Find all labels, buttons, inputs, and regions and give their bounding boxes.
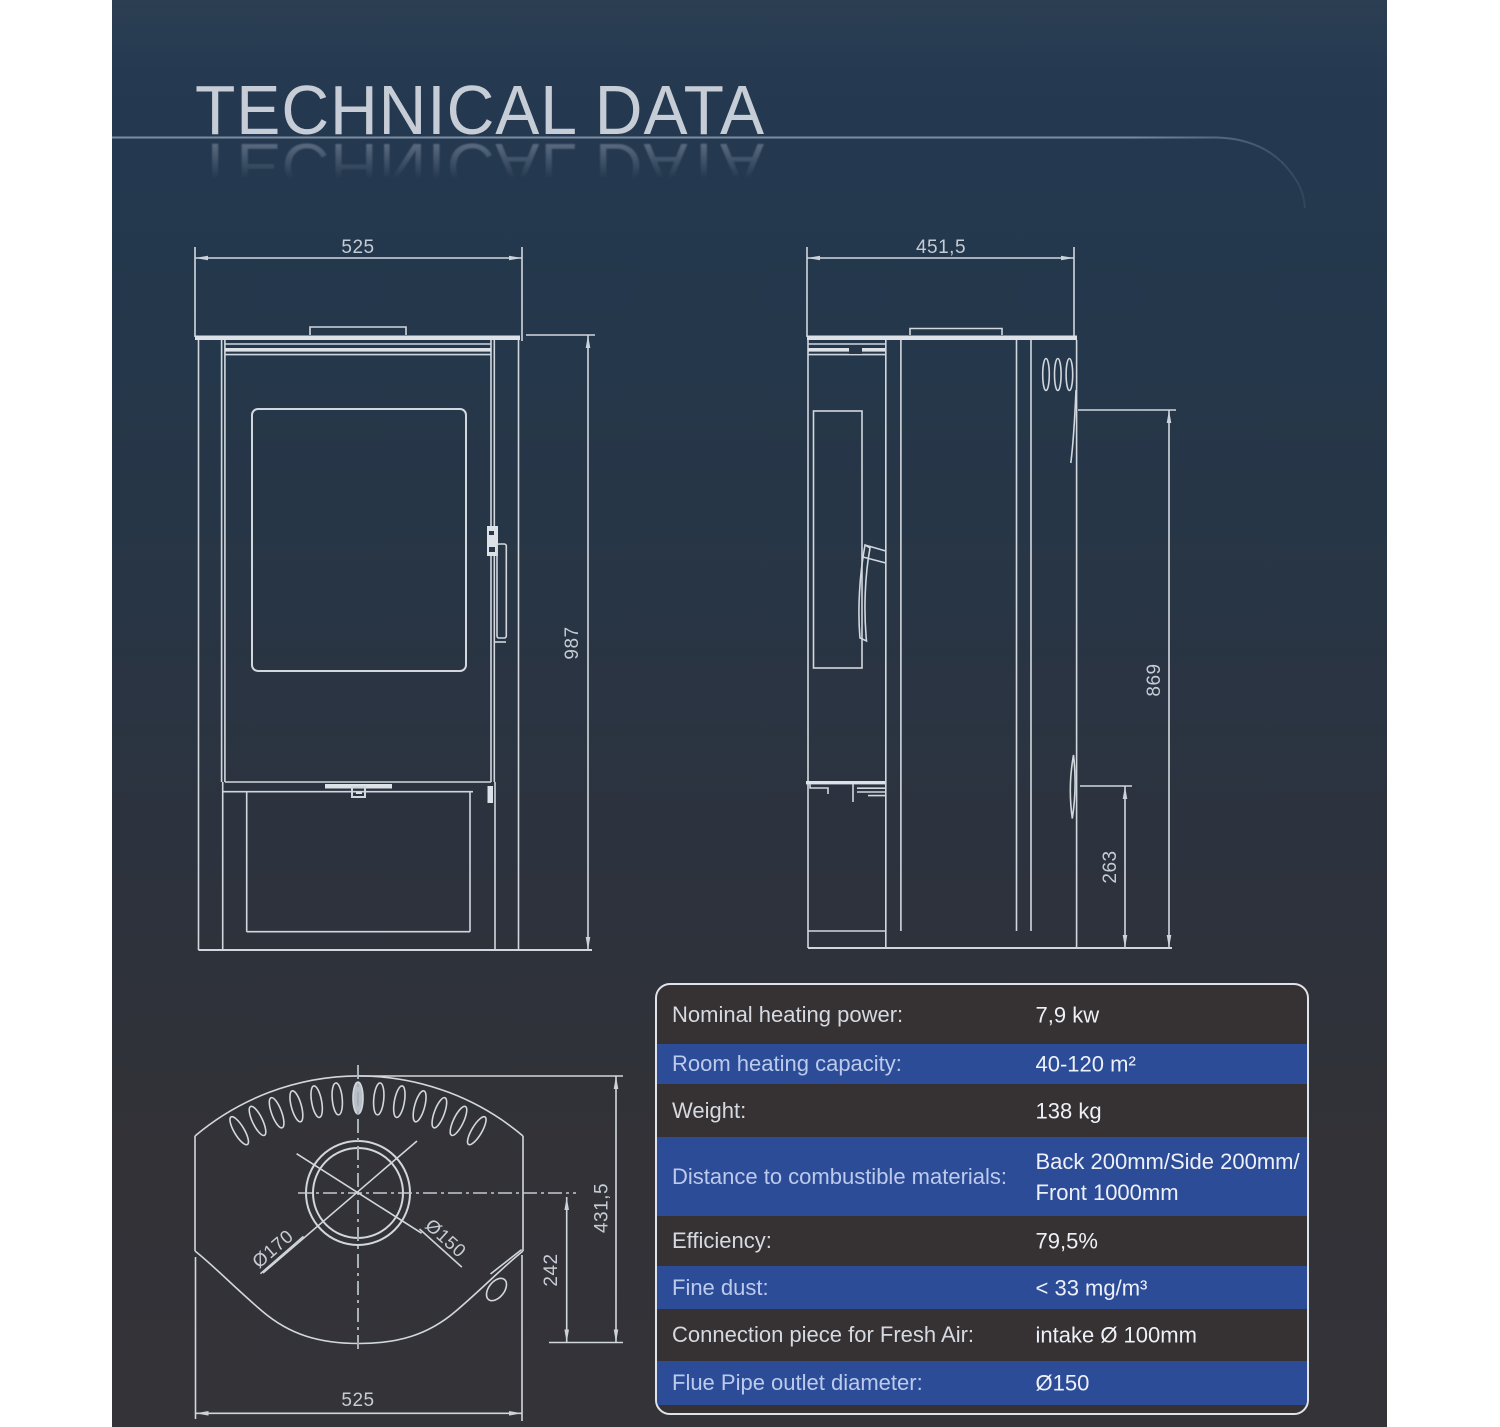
svg-text:869: 869 [1144, 663, 1165, 696]
svg-text:451,5: 451,5 [916, 237, 966, 258]
svg-text:263: 263 [1100, 850, 1121, 883]
svg-text:987: 987 [562, 626, 583, 659]
svg-text:431,5: 431,5 [592, 1183, 613, 1233]
svg-text:242: 242 [541, 1253, 562, 1286]
svg-text:525: 525 [341, 1390, 374, 1411]
svg-text:525: 525 [341, 237, 374, 258]
